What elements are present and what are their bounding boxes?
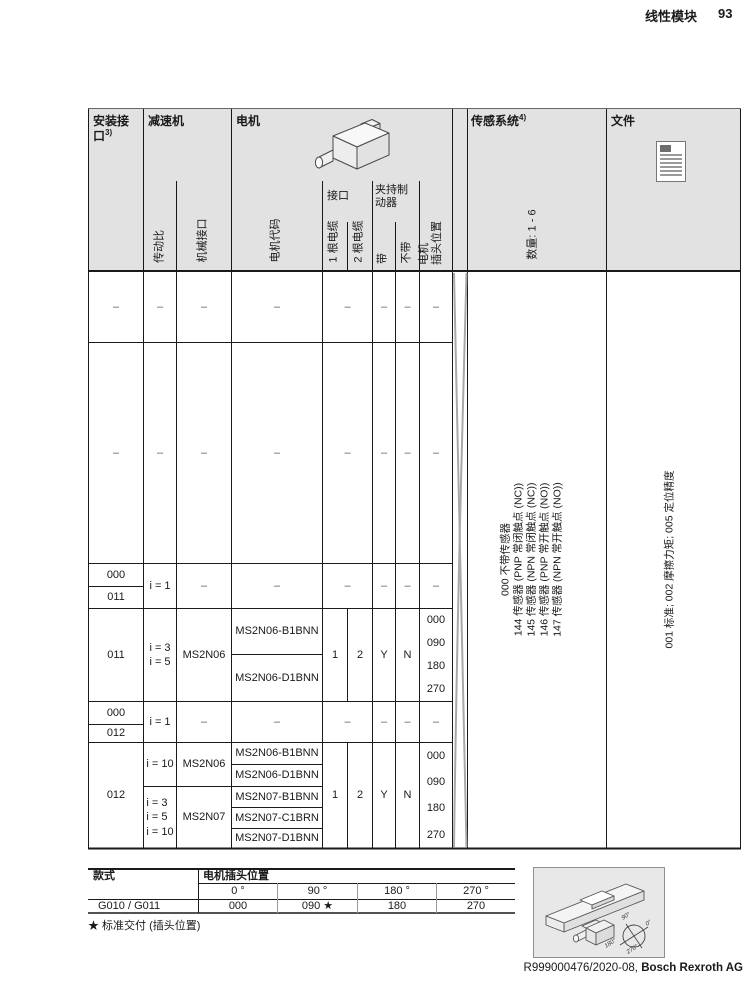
table-cell: – — [420, 272, 452, 342]
col-header-doc: 文件 — [611, 114, 635, 129]
bottom-plug-value: 090 ★ — [278, 900, 357, 913]
plug-position-value: 270 — [427, 828, 445, 842]
table-cell-motor-code: MS2N06-D1BNN — [232, 655, 322, 701]
subheader-interface: 接口 — [327, 190, 349, 203]
table-cell: – — [144, 272, 176, 342]
table-cell: – — [420, 343, 452, 563]
table-cell: – — [323, 564, 372, 608]
table-cell: – — [177, 272, 231, 342]
bottom-style-header: 款式 — [93, 870, 193, 883]
table-cell: – — [373, 343, 395, 563]
doc-options: 001 标准; 002 摩擦力矩; 005 定位精度 — [664, 455, 677, 665]
table-cell-mount: 011 — [89, 609, 143, 701]
document-icon — [656, 141, 686, 182]
table-cell-mount: 011 — [89, 587, 143, 608]
sensor-footnote-ref: 4) — [519, 113, 526, 122]
col-label-mech-interface: 机械接口 — [197, 217, 210, 265]
sensor-options: 000 不带传感器 144 传感器 (PNP 常闭触点 (NC)) 145 传感… — [500, 470, 565, 650]
sensor-option: 147 传感器 (NPN 常开触点 (NO)) — [552, 470, 565, 650]
page-footer: R999000476/2020-08, Bosch Rexroth AG — [400, 962, 743, 974]
col-header-mounting: 安装接 口3) — [93, 114, 129, 144]
bottom-plug-value: 180 — [358, 900, 436, 913]
table-cell-plug-positions: 000 090 180 270 — [420, 743, 452, 848]
table-cell-motor-code: MS2N06-B1BNN — [232, 743, 322, 764]
table-cell-ratio: i = 3 i = 5 — [144, 609, 176, 701]
table-cell: – — [144, 343, 176, 563]
table-cell-mount: 000 — [89, 702, 143, 724]
table-cell-mech: MS2N06 — [177, 743, 231, 786]
mounting-label-line2: 口 — [93, 129, 105, 143]
sensor-label: 传感系统 — [471, 114, 519, 128]
table-cell: – — [89, 272, 143, 342]
table-cell: – — [177, 343, 231, 563]
col-label-cable1: 1 根电缆 — [328, 219, 341, 265]
table-cell: – — [323, 272, 372, 342]
table-cell-brake-with: Y — [373, 609, 395, 701]
bottom-footnote: ★ 标准交付 (插头位置) — [88, 919, 308, 933]
bottom-degree-header: 0 ° — [199, 884, 277, 899]
table-cell: – — [396, 702, 419, 742]
table-cell-motor-code: MS2N07-D1BNN — [232, 829, 322, 848]
subheader-brake: 夹持制 动器 — [375, 184, 408, 210]
table-cell: – — [396, 272, 419, 342]
table-cell: – — [396, 343, 419, 563]
angle-label-90: 90° — [621, 911, 632, 921]
sensor-option: 146 传感器 (PNP 常开触点 (NO)) — [539, 470, 552, 650]
angle-label-0: 0° — [645, 919, 654, 927]
table-cell: – — [232, 702, 322, 742]
bottom-style-value: G010 / G011 — [98, 900, 194, 913]
bottom-plug-header: 电机插头位置 — [203, 870, 343, 883]
plug-label-line2: 插头位置 — [431, 221, 443, 265]
plug-label-line1: 电机 — [418, 243, 430, 265]
ratio-value: i = 5 — [149, 655, 170, 669]
table-cell: – — [323, 702, 372, 742]
brake-label-line2: 动器 — [375, 197, 397, 209]
table-cell: – — [420, 702, 452, 742]
col-label-with-brake: 带 — [377, 253, 390, 265]
table-cell-mech: MS2N06 — [177, 609, 231, 701]
col-label-sensor-qty: 数量: 1 - 6 — [527, 205, 540, 265]
table-cell-mount: 012 — [89, 743, 143, 848]
col-label-plug-position: 电机 插头位置 — [418, 217, 444, 265]
table-cell: – — [396, 564, 419, 608]
plug-position-value: 000 — [427, 613, 445, 627]
mounting-label-line1: 安装接 — [93, 114, 129, 128]
table-cell: – — [232, 272, 322, 342]
table-cell-cable1: 1 — [323, 743, 347, 848]
table-cell: – — [420, 564, 452, 608]
mounting-footnote-ref: 3) — [105, 128, 112, 137]
table-cell-mount: 012 — [89, 725, 143, 742]
footer-company: Bosch Rexroth AG — [641, 962, 743, 974]
table-cell-cable1: 1 — [323, 609, 347, 701]
table-cell-ratio: i = 1 — [144, 564, 176, 608]
col-header-gearbox: 减速机 — [148, 114, 184, 129]
table-cell-ratio: i = 10 — [144, 743, 176, 786]
table-cell-mount: 000 — [89, 564, 143, 586]
table-cell: – — [373, 272, 395, 342]
col-label-without-brake: 不带 — [401, 241, 414, 265]
bottom-degree-header: 90 ° — [278, 884, 357, 899]
table-cell-ratio: i = 1 — [144, 702, 176, 742]
table-cell: – — [373, 702, 395, 742]
col-header-motor: 电机 — [236, 114, 260, 129]
sensor-option: 145 传感器 (NPN 常闭触点 (NC)) — [526, 470, 539, 650]
plug-position-value: 270 — [427, 682, 445, 696]
table-cell-plug-positions: 000 090 180 270 — [420, 609, 452, 701]
bottom-degree-header: 180 ° — [358, 884, 436, 899]
bottom-degree-header: 270 ° — [437, 884, 515, 899]
bottom-plug-value: 270 — [437, 900, 515, 913]
table-cell-brake-without: N — [396, 743, 419, 848]
plug-position-value: 180 — [427, 659, 445, 673]
table-cell-cable2: 2 — [348, 609, 372, 701]
table-cell-brake-with: Y — [373, 743, 395, 848]
plug-diagram-drawing: 0° 90° 180° 270° — [534, 868, 664, 957]
col-label-cable2: 2 根电缆 — [353, 219, 366, 265]
bottom-plug-value: 000 — [199, 900, 277, 913]
table-cell: – — [373, 564, 395, 608]
plug-position-value: 090 — [427, 775, 445, 789]
table-cell-ratio: i = 3 i = 5 i = 10 — [144, 787, 176, 848]
table-cell-motor-code: MS2N07-C1BRN — [232, 808, 322, 828]
table-cell: – — [323, 343, 372, 563]
brake-label-line1: 夹持制 — [375, 184, 408, 196]
table-cell-motor-code: MS2N06-D1BNN — [232, 765, 322, 786]
ratio-value: i = 3 — [149, 641, 170, 655]
table-cell-cable2: 2 — [348, 743, 372, 848]
table-cell: – — [89, 343, 143, 563]
table-cell: – — [177, 564, 231, 608]
document-icon-block — [660, 145, 671, 152]
header-background — [88, 108, 741, 271]
plug-orientation-diagram: 0° 90° 180° 270° — [533, 867, 665, 958]
col-header-sensor: 传感系统4) — [471, 114, 526, 129]
angle-label-270: 270° — [625, 944, 640, 957]
callout-curves — [454, 273, 467, 847]
plug-position-value: 000 — [427, 749, 445, 763]
ratio-value: i = 10 — [146, 825, 173, 839]
table-cell: – — [177, 702, 231, 742]
table-cell: – — [232, 564, 322, 608]
plug-position-value: 090 — [427, 636, 445, 650]
table-cell-mech: MS2N07 — [177, 787, 231, 848]
plug-position-value: 180 — [427, 801, 445, 815]
ratio-value: i = 3 — [146, 796, 173, 810]
table-cell-motor-code: MS2N06-B1BNN — [232, 609, 322, 654]
sensor-option: 144 传感器 (PNP 常闭触点 (NC)) — [513, 470, 526, 650]
table-cell-motor-code: MS2N07-B1BNN — [232, 787, 322, 807]
table-cell-brake-without: N — [396, 609, 419, 701]
sensor-option: 000 不带传感器 — [500, 470, 513, 650]
catalog-page: 线性模块 93 — [0, 0, 750, 988]
motor-icon — [305, 116, 405, 182]
table-cell: – — [232, 343, 322, 563]
col-label-ratio: 传动比 — [154, 229, 167, 265]
col-label-motor-code: 电机代码 — [270, 217, 283, 265]
ratio-value: i = 5 — [146, 810, 173, 824]
footer-reference: R999000476/2020-08, — [524, 962, 638, 974]
